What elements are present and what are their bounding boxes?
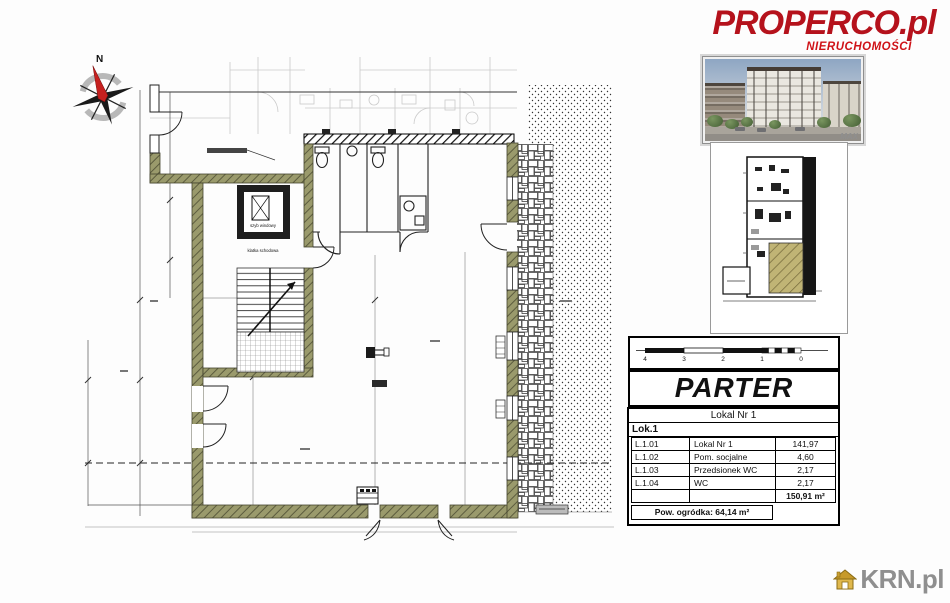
site-plan-svg: [711, 143, 845, 331]
stairs-label: klatka schodowa: [248, 248, 280, 253]
toilet-icon: [317, 153, 328, 168]
building-photo-render: MAX: [705, 59, 861, 141]
north-needle: [88, 64, 109, 103]
tree: [769, 120, 781, 129]
south-wall-a: [192, 505, 368, 518]
room-area: 141,97: [776, 438, 836, 451]
table-grid: L.1.01 Lokal Nr 1 141,97 L.1.02 Pom. soc…: [631, 437, 836, 503]
scale-bar: 4 3 2 1 0: [628, 336, 840, 370]
door-arc: [438, 520, 454, 540]
room-code: L.1.01: [632, 438, 690, 451]
properco-tagline: NIERUCHOMOŚCI: [700, 42, 948, 54]
elevator-shaft: szyb windowy klatka schodowa: [237, 185, 290, 253]
floor-title: PARTER: [628, 370, 840, 407]
scale-tick: 1: [760, 356, 764, 363]
door-arc: [313, 247, 334, 268]
properco-logo-text: PROPERCO.pl: [700, 6, 948, 40]
toilet-icon: [373, 153, 384, 168]
radiator-icon: [496, 400, 505, 418]
total-area: 150,91 m²: [776, 490, 836, 503]
photo-road: [705, 134, 861, 141]
terrain-stipple-right: [553, 144, 612, 512]
top-left-wall: [150, 174, 312, 183]
room-area: 2,17: [776, 477, 836, 490]
table-group-label: Lok.1: [629, 423, 838, 437]
wc-rooms: [313, 144, 428, 254]
krn-logo-text: KRN.pl: [860, 564, 944, 595]
scale-tick: 3: [682, 356, 686, 363]
photo-watermark: MAX: [840, 132, 858, 141]
site-plan-thumbnail: [710, 142, 848, 334]
building-photo: MAX: [702, 56, 864, 144]
door-arc: [400, 232, 420, 252]
room-area: 2,17: [776, 464, 836, 477]
door-arc: [318, 232, 340, 254]
staircase: [237, 268, 304, 372]
core-wall-lower: [304, 268, 313, 372]
total-row-spacer: [632, 490, 690, 503]
car: [735, 127, 745, 131]
scale-tick: 0: [799, 356, 803, 363]
door-arc: [203, 386, 228, 411]
compass-icon: N: [62, 54, 142, 134]
elevator-label: szyb windowy: [250, 223, 277, 228]
paving-strip: [517, 144, 553, 512]
adjacent-plan-faded: [150, 57, 517, 134]
building-center: [747, 67, 821, 131]
door-arc: [203, 424, 226, 447]
door-arc: [159, 112, 182, 135]
house-icon: [833, 569, 857, 591]
note-label: [207, 148, 247, 153]
door-arc: [481, 224, 507, 250]
walls: [150, 85, 518, 518]
car: [757, 128, 766, 132]
site-plan-shadow-band: [803, 157, 816, 295]
total-row-spacer: [690, 490, 776, 503]
garden-highlight: [769, 243, 803, 293]
room-code: L.1.03: [632, 464, 690, 477]
room-code: L.1.02: [632, 451, 690, 464]
room-name: Lokal Nr 1: [690, 438, 776, 451]
tree: [843, 114, 861, 127]
east-wall: [507, 143, 518, 177]
car: [795, 127, 805, 131]
properco-logo[interactable]: PROPERCO.pl NIERUCHOMOŚCI: [700, 6, 948, 54]
room-area: 4,60: [776, 451, 836, 464]
room-code: L.1.04: [632, 477, 690, 490]
exterior-ground: [517, 85, 612, 512]
south-wall-b: [380, 505, 438, 518]
door-arc: [364, 520, 380, 540]
terrain-stipple-top: [528, 85, 612, 144]
krn-logo[interactable]: KRN.pl: [833, 564, 944, 595]
west-wall: [192, 183, 203, 518]
sink-icon: [347, 146, 357, 156]
scale-tick: 2: [721, 356, 725, 363]
tree: [817, 117, 831, 128]
tree: [707, 115, 723, 127]
radiator-icon: [496, 336, 505, 358]
room-name: WC: [690, 477, 776, 490]
north-hatched-wall: [304, 134, 514, 144]
garden-area-note: Pow. ogródka: 64,14 m²: [631, 505, 773, 520]
room-name: Pom. socjalne: [690, 451, 776, 464]
tree: [741, 117, 753, 127]
area-table: Lokal Nr 1 Lok.1 L.1.01 Lokal Nr 1 141,9…: [627, 407, 840, 526]
listing-flyer: szyb windowy klatka schodowa: [0, 0, 950, 603]
room-name: Przedsionek WC: [690, 464, 776, 477]
scale-tick: 4: [643, 356, 647, 363]
compass-north-label: N: [96, 54, 103, 65]
table-header: Lokal Nr 1: [629, 409, 838, 423]
core-wall-upper: [304, 144, 313, 247]
exterior-label: [536, 505, 568, 514]
